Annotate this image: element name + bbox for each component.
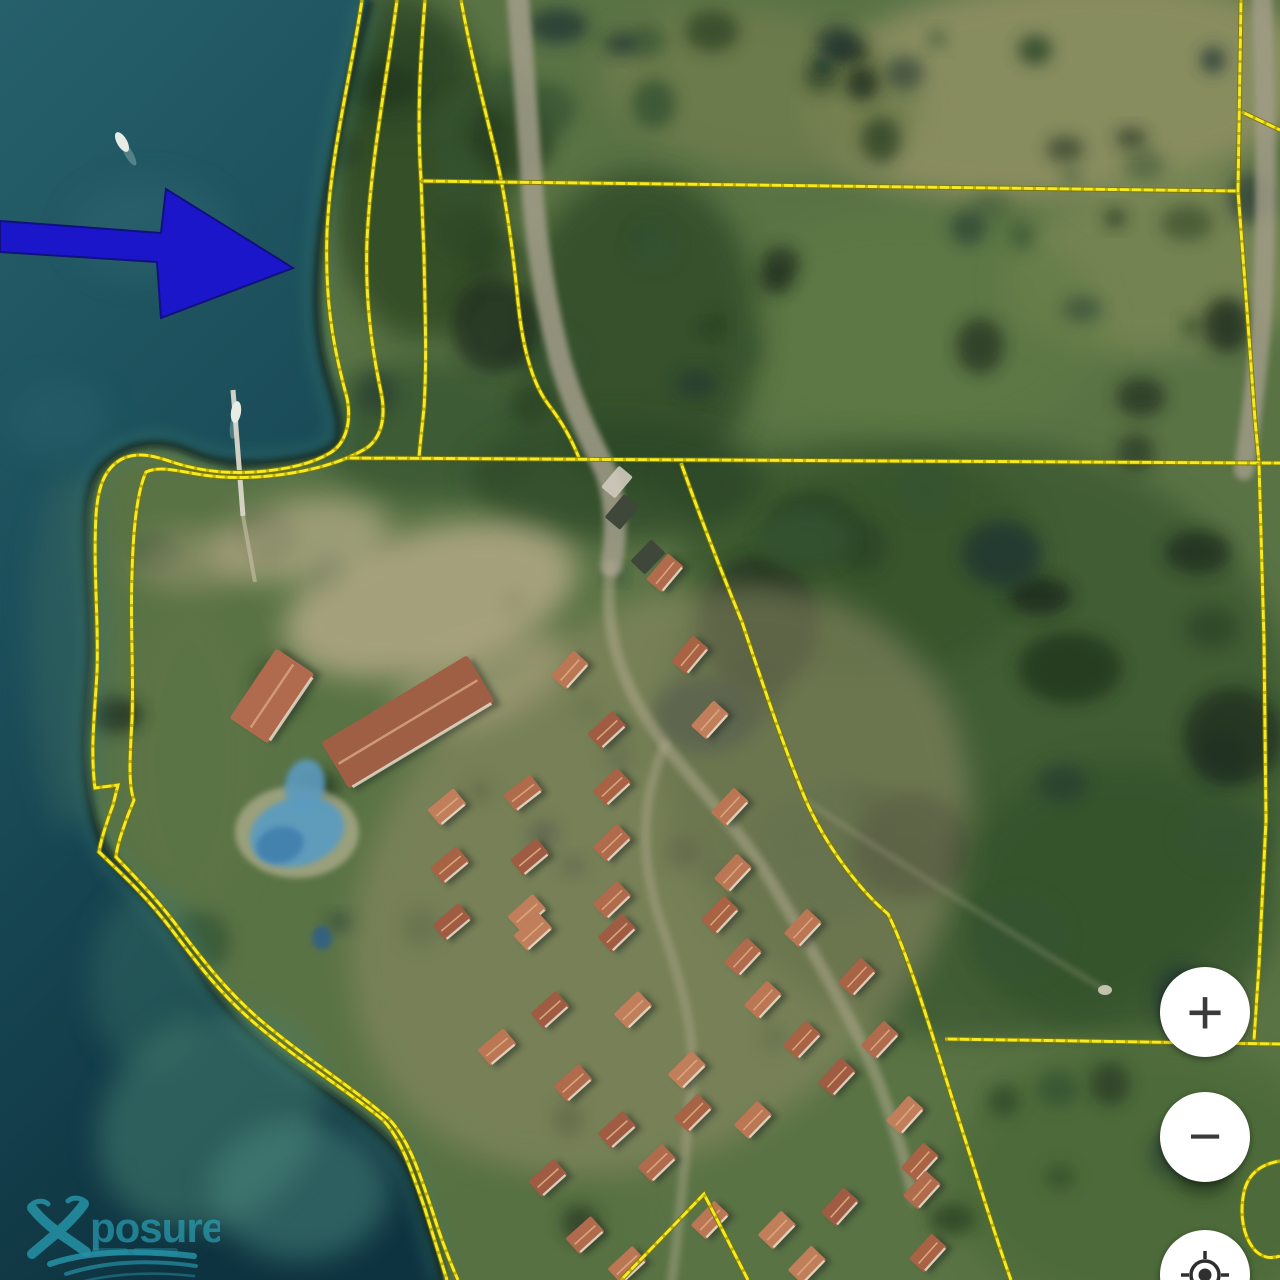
zoom-out-button[interactable]: − [1160, 1092, 1250, 1182]
gps-crosshair-icon [1179, 1249, 1231, 1280]
small-structure [1098, 985, 1112, 995]
map-viewport[interactable]: + − posure [0, 0, 1280, 1280]
satellite-map [0, 0, 1280, 1280]
zoom-in-button[interactable]: + [1160, 967, 1250, 1057]
